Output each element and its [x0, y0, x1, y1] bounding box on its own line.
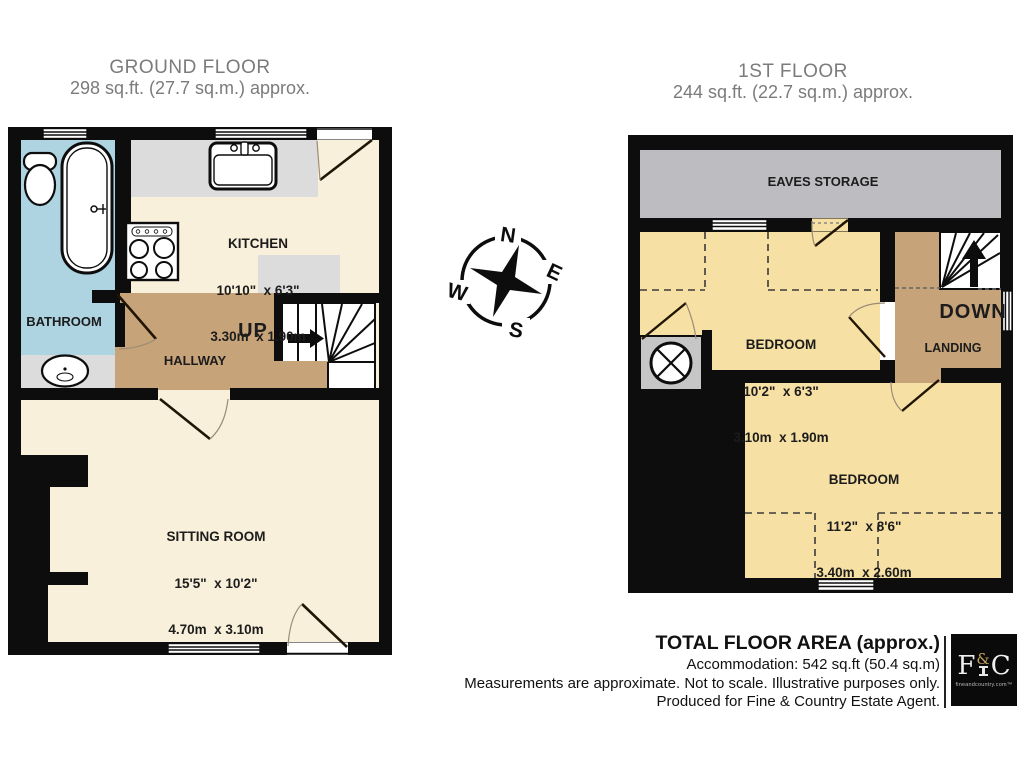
first-floor-area: 244 sq.ft. (22.7 sq.m.) approx. [648, 82, 938, 103]
kitchen-size-imperial: 10'10" x 6'3" [188, 283, 328, 299]
bathroom-sink-icon [42, 356, 88, 387]
bathtub-icon [62, 143, 112, 273]
kitchen-window [215, 129, 307, 139]
sitting-room-size-imperial: 15'5" x 10'2" [146, 576, 286, 592]
sitting-room-label: SITTING ROOM 15'5" x 10'2" 4.70m x 3.10m [146, 498, 286, 669]
sitting-room-name: SITTING ROOM [146, 529, 286, 545]
logo-letter-c: C [991, 653, 1011, 679]
logo-letter-f: F [957, 653, 975, 679]
logo-brand: F & C [957, 653, 1010, 679]
bedroom-front-size-imperial: 10'2" x 6'3" [711, 384, 851, 400]
compass-star [470, 245, 542, 317]
floorplan-page: GROUND FLOOR 298 sq.ft. (27.7 sq.m.) app… [0, 0, 1024, 768]
footer: TOTAL FLOOR AREA (approx.) Accommodation… [430, 631, 940, 712]
first-floor-title: 1ST FLOOR 244 sq.ft. (22.7 sq.m.) approx… [648, 61, 938, 103]
shower-icon [640, 336, 702, 390]
bedroom-main-label: BEDROOM 11'2" x 8'6" 3.40m x 2.60m [794, 441, 934, 612]
landing-doorway-floor [888, 368, 941, 383]
eaves-storage-label: EAVES STORAGE [753, 174, 893, 190]
stove-icon [126, 223, 178, 280]
ground-floor-name: GROUND FLOOR [50, 57, 330, 78]
ground-floor-area: 298 sq.ft. (27.7 sq.m.) approx. [50, 78, 330, 99]
hallway-label: HALLWAY [157, 353, 233, 369]
compass-rose-icon: N E W S [443, 218, 569, 344]
compass-north-label: N [499, 223, 517, 248]
kitchen-label: KITCHEN 10'10" x 6'3" 3.30m x 1.90m [188, 205, 328, 376]
toilet-icon [24, 153, 56, 205]
bathroom-window [43, 129, 87, 139]
total-floor-area-title: TOTAL FLOOR AREA (approx.) [430, 631, 940, 656]
producer-text: Produced for Fine & Country Estate Agent… [430, 693, 940, 712]
stairs-up-label: UP [223, 324, 283, 340]
kitchen-name: KITCHEN [188, 236, 328, 252]
bedroom-main-size-metric: 3.40m x 2.60m [794, 565, 934, 581]
first-floor-name: 1ST FLOOR [648, 61, 938, 82]
ground-floor-title: GROUND FLOOR 298 sq.ft. (27.7 sq.m.) app… [50, 57, 330, 99]
logo-mid: & [976, 653, 989, 676]
accommodation-text: Accommodation: 542 sq.ft (50.4 sq.m) [430, 656, 940, 675]
kitchen-sink-icon [210, 142, 276, 189]
landing-label: LANDING [915, 341, 991, 357]
disclaimer-text: Measurements are approximate. Not to sca… [430, 675, 940, 694]
bathroom-label: BATHROOM [16, 314, 112, 330]
logo-ampersand: & [976, 653, 989, 666]
stairs-down-label: DOWN [938, 305, 1008, 321]
sitting-room-size-metric: 4.70m x 3.10m [146, 622, 286, 638]
bedroom-main-name: BEDROOM [794, 472, 934, 488]
logo-domain: fineandcountry.com™ [956, 682, 1013, 688]
bedroom-front-window [712, 220, 767, 231]
chimney-breast [18, 455, 92, 585]
fine-and-country-logo: F & C fineandcountry.com™ [951, 634, 1017, 706]
bedroom-main-size-imperial: 11'2" x 8'6" [794, 519, 934, 535]
footer-divider [944, 636, 946, 708]
bedroom-front-name: BEDROOM [711, 337, 851, 353]
